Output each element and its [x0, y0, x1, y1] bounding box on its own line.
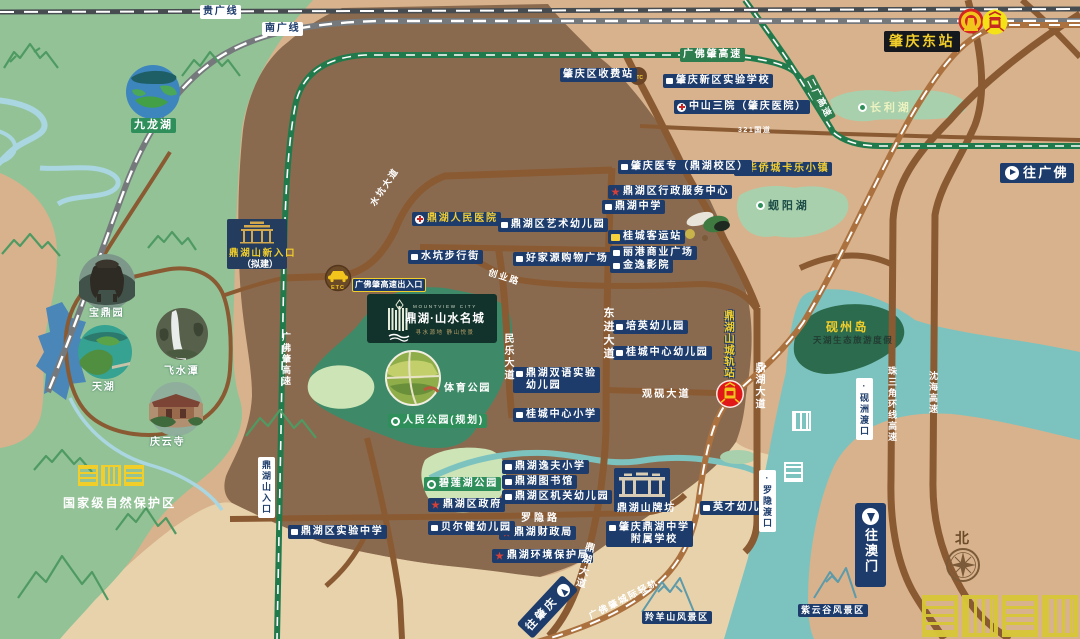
svg-text:鼎湖·山水名城: 鼎湖·山水名城	[405, 311, 485, 325]
svg-text:寻水源地 静山悦景: 寻水源地 静山悦景	[415, 328, 474, 336]
svg-text:ETC: ETC	[331, 285, 345, 291]
svg-text:MOUNTVIEW CITY: MOUNTVIEW CITY	[413, 304, 477, 309]
